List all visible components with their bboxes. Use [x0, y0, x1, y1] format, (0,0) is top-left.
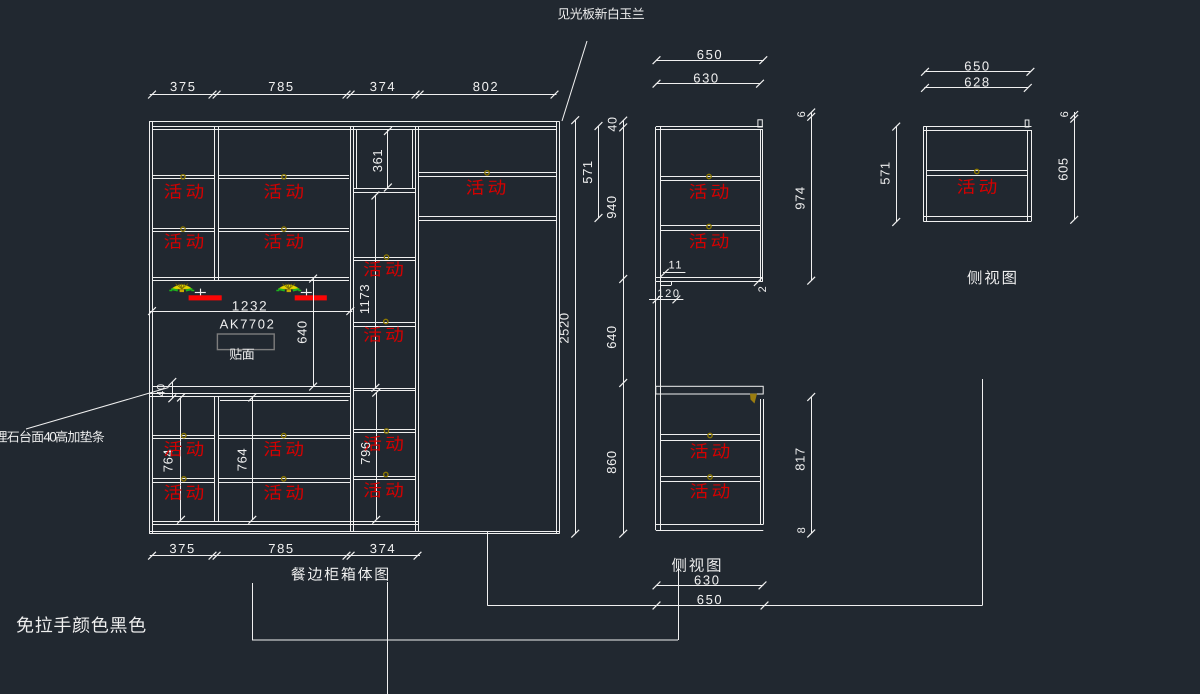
svg-text:2520: 2520 — [556, 312, 571, 343]
svg-text:375: 375 — [170, 79, 197, 94]
svg-text:940: 940 — [604, 195, 619, 219]
svg-text:11: 11 — [668, 260, 683, 272]
svg-text:860: 860 — [604, 450, 619, 474]
svg-text:650: 650 — [964, 58, 991, 73]
svg-text:8: 8 — [796, 527, 808, 534]
svg-text:802: 802 — [473, 79, 500, 94]
svg-text:817: 817 — [792, 447, 807, 471]
svg-text:40: 40 — [606, 116, 620, 131]
svg-text:0: 0 — [49, 430, 57, 445]
svg-text:650: 650 — [697, 592, 724, 607]
svg-text:785: 785 — [268, 79, 295, 94]
svg-text:630: 630 — [693, 70, 720, 85]
svg-text:40: 40 — [156, 383, 168, 396]
svg-text:361: 361 — [370, 149, 385, 173]
svg-text:571: 571 — [580, 160, 595, 184]
svg-text:974: 974 — [792, 186, 807, 210]
svg-text:785: 785 — [268, 541, 295, 556]
svg-text:650: 650 — [697, 47, 724, 62]
svg-text:571: 571 — [878, 161, 893, 185]
svg-text:AK7702: AK7702 — [220, 317, 276, 332]
svg-text:374: 374 — [370, 541, 397, 556]
svg-text:1232: 1232 — [232, 299, 268, 314]
svg-text:6: 6 — [796, 111, 808, 118]
svg-text:1173: 1173 — [357, 284, 372, 314]
svg-text:375: 375 — [169, 541, 196, 556]
svg-text:374: 374 — [370, 79, 397, 94]
svg-text:2: 2 — [757, 286, 769, 293]
svg-text:605: 605 — [1055, 157, 1070, 181]
svg-text:628: 628 — [964, 74, 991, 89]
svg-text:640: 640 — [295, 320, 310, 344]
svg-text:764: 764 — [235, 448, 250, 472]
svg-text:6: 6 — [1059, 111, 1071, 118]
svg-text:640: 640 — [604, 325, 619, 349]
